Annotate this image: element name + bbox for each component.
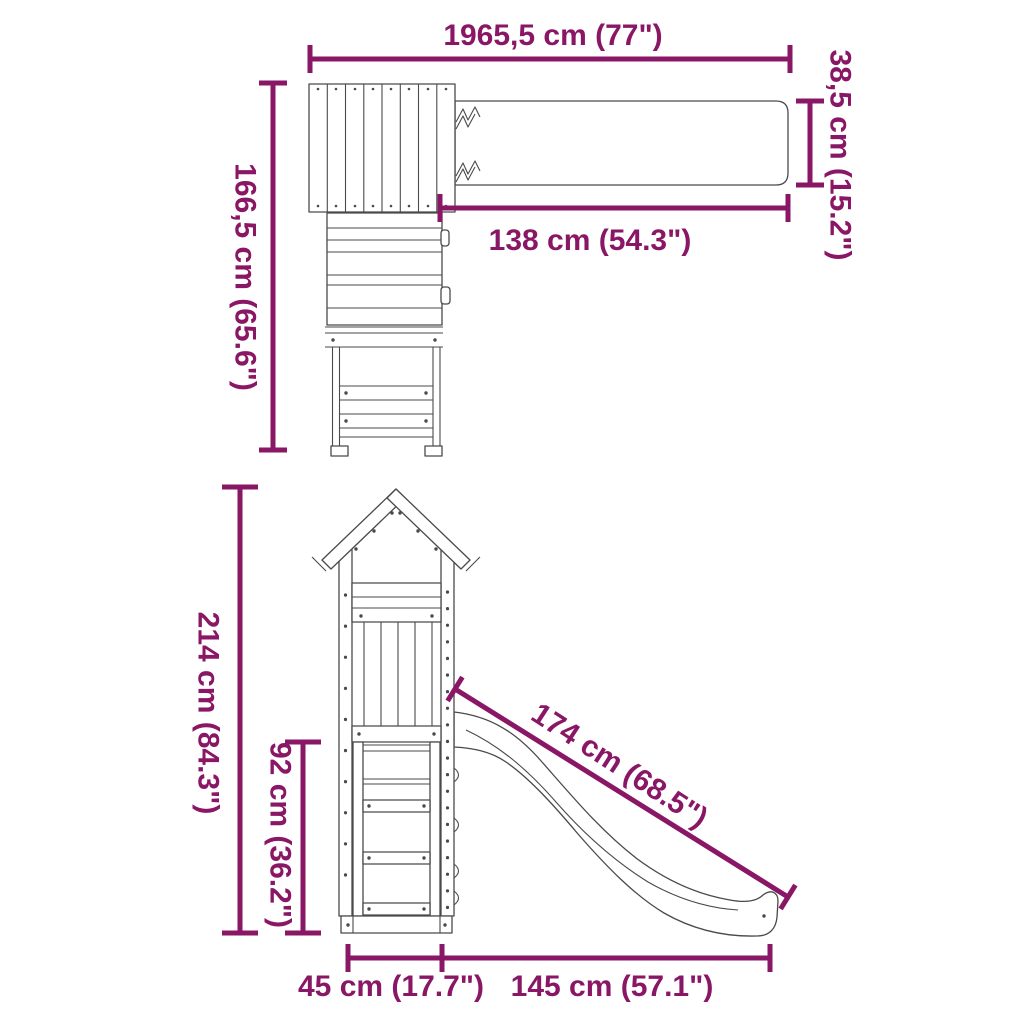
ladder-front [341,742,452,933]
left-post [339,548,352,916]
dim-base-depth-label: 45 cm (17.7") [298,970,484,1003]
ladder-top-band [325,327,443,347]
upper-band [352,583,441,622]
base-screw [443,923,446,926]
ladder-rung [363,852,430,864]
ladder-top-rungs [340,386,434,437]
wall-clip [441,287,450,304]
wall-clip [441,230,449,246]
ladder-top [325,327,443,456]
roof-top [309,84,455,212]
ladder-top-rails [333,347,441,446]
band-screw [432,732,435,735]
dim-top-depth-line [259,83,287,450]
ladder-rail-right [430,742,440,916]
upper-wall [352,583,441,742]
base-screw [346,923,349,926]
roof-bar-right [387,489,470,569]
band-screw [430,614,433,617]
diagram-svg: 1965,5 cm (77") 38,5 cm (15.2") 166,5 cm… [0,0,1024,1024]
dim-beam-width-label: 38,5 cm (15.2") [824,49,857,260]
dim-slide-length-label: 174 cm (68.5") [525,697,713,835]
dim-bottom-line [348,944,770,972]
dim-beam-clear-label: 138 cm (54.3") [489,224,692,257]
dim-beam-clear-line [440,194,788,222]
wall-top [327,213,450,325]
dim-total-height-label: 214 cm (84.3") [192,612,225,815]
gable-roof [312,489,480,571]
balusters [364,622,432,726]
slide-hooks [454,768,459,905]
ladder-top-screws [331,338,436,422]
platform-band [352,726,441,742]
top-view [309,84,788,456]
ladder-foot [331,446,348,456]
dim-beam-width-line [796,101,824,185]
band-screw [359,614,362,617]
playset-dimension-diagram: 1965,5 cm (77") 38,5 cm (15.2") 166,5 cm… [0,0,1024,1024]
slide-screw [762,914,765,917]
beam-outline [455,101,788,185]
base-plate [341,916,452,933]
dim-slide-span-label: 145 cm (57.1") [511,970,714,1003]
ladder-rung [363,903,430,915]
ladder-rail-left [353,742,363,916]
dim-overall-length-label: 1965,5 cm (77") [443,19,662,52]
band-screw [357,732,360,735]
dim-top-depth-label: 166,5 cm (65.6") [229,163,262,391]
right-post [441,548,454,916]
ladder-rung [363,800,430,812]
swing-beam-top [455,101,788,185]
ladder-foot [425,446,442,456]
ladder-upper-rungs [363,745,430,784]
dim-platform-height-label: 92 cm (36.2") [264,742,297,928]
dim-total-height-line [222,487,258,933]
